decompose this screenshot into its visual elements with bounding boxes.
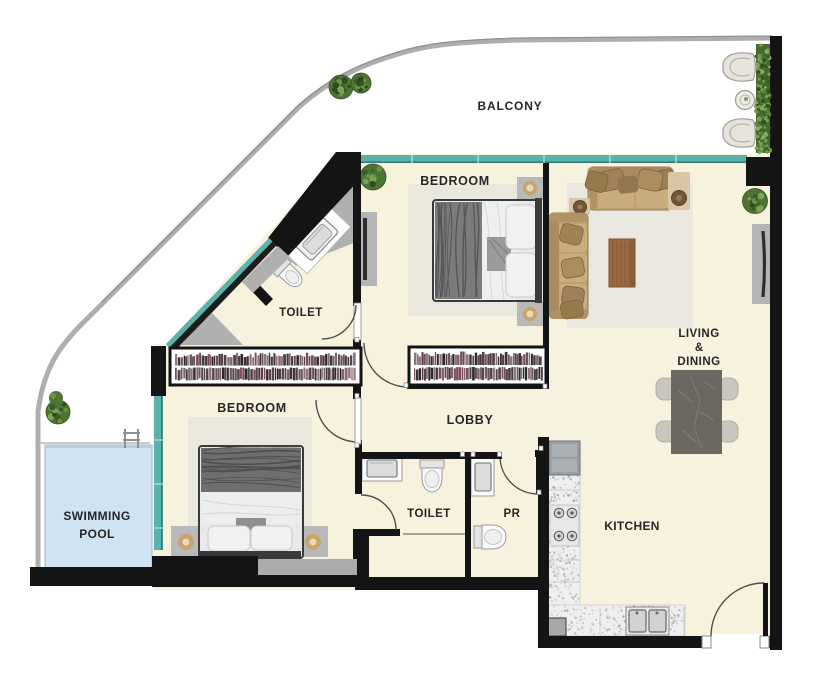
svg-text:BEDROOM: BEDROOM <box>217 401 286 415</box>
svg-text:TOILET: TOILET <box>407 508 451 520</box>
svg-text:LIVING: LIVING <box>678 328 719 340</box>
svg-text:LOBBY: LOBBY <box>447 413 494 427</box>
svg-text:KITCHEN: KITCHEN <box>604 519 659 533</box>
svg-text:BEDROOM: BEDROOM <box>420 174 489 188</box>
svg-text:POOL: POOL <box>79 527 115 541</box>
svg-text:&: & <box>695 342 703 354</box>
svg-text:BALCONY: BALCONY <box>478 99 543 113</box>
svg-text:PR: PR <box>504 508 521 520</box>
svg-text:DINING: DINING <box>677 356 720 368</box>
svg-text:SWIMMING: SWIMMING <box>63 509 130 523</box>
svg-text:TOILET: TOILET <box>279 307 323 319</box>
